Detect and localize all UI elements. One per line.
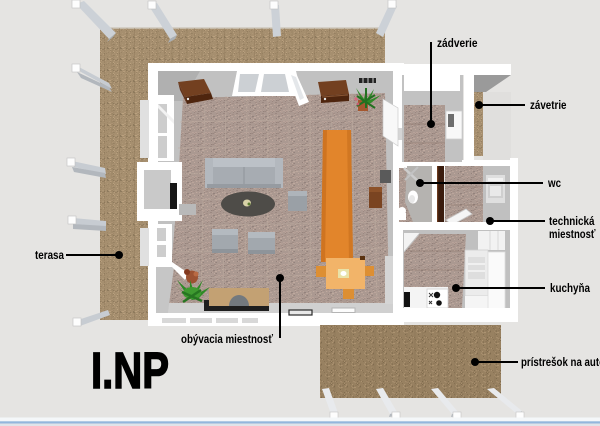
svg-text:obývacia miestnosť: obývacia miestnosť — [181, 332, 273, 346]
svg-text:prístrešok na auto: prístrešok na auto — [521, 355, 600, 369]
svg-text:zádverie: zádverie — [437, 36, 478, 50]
svg-text:terasa: terasa — [35, 248, 64, 262]
svg-text:I.NP: I.NP — [91, 342, 169, 399]
svg-text:závetrie: závetrie — [530, 98, 567, 112]
svg-text:kuchyňa: kuchyňa — [550, 281, 590, 295]
svg-text:miestnosť: miestnosť — [549, 227, 596, 241]
svg-text:technická: technická — [549, 214, 595, 228]
svg-text:wc: wc — [547, 176, 561, 190]
